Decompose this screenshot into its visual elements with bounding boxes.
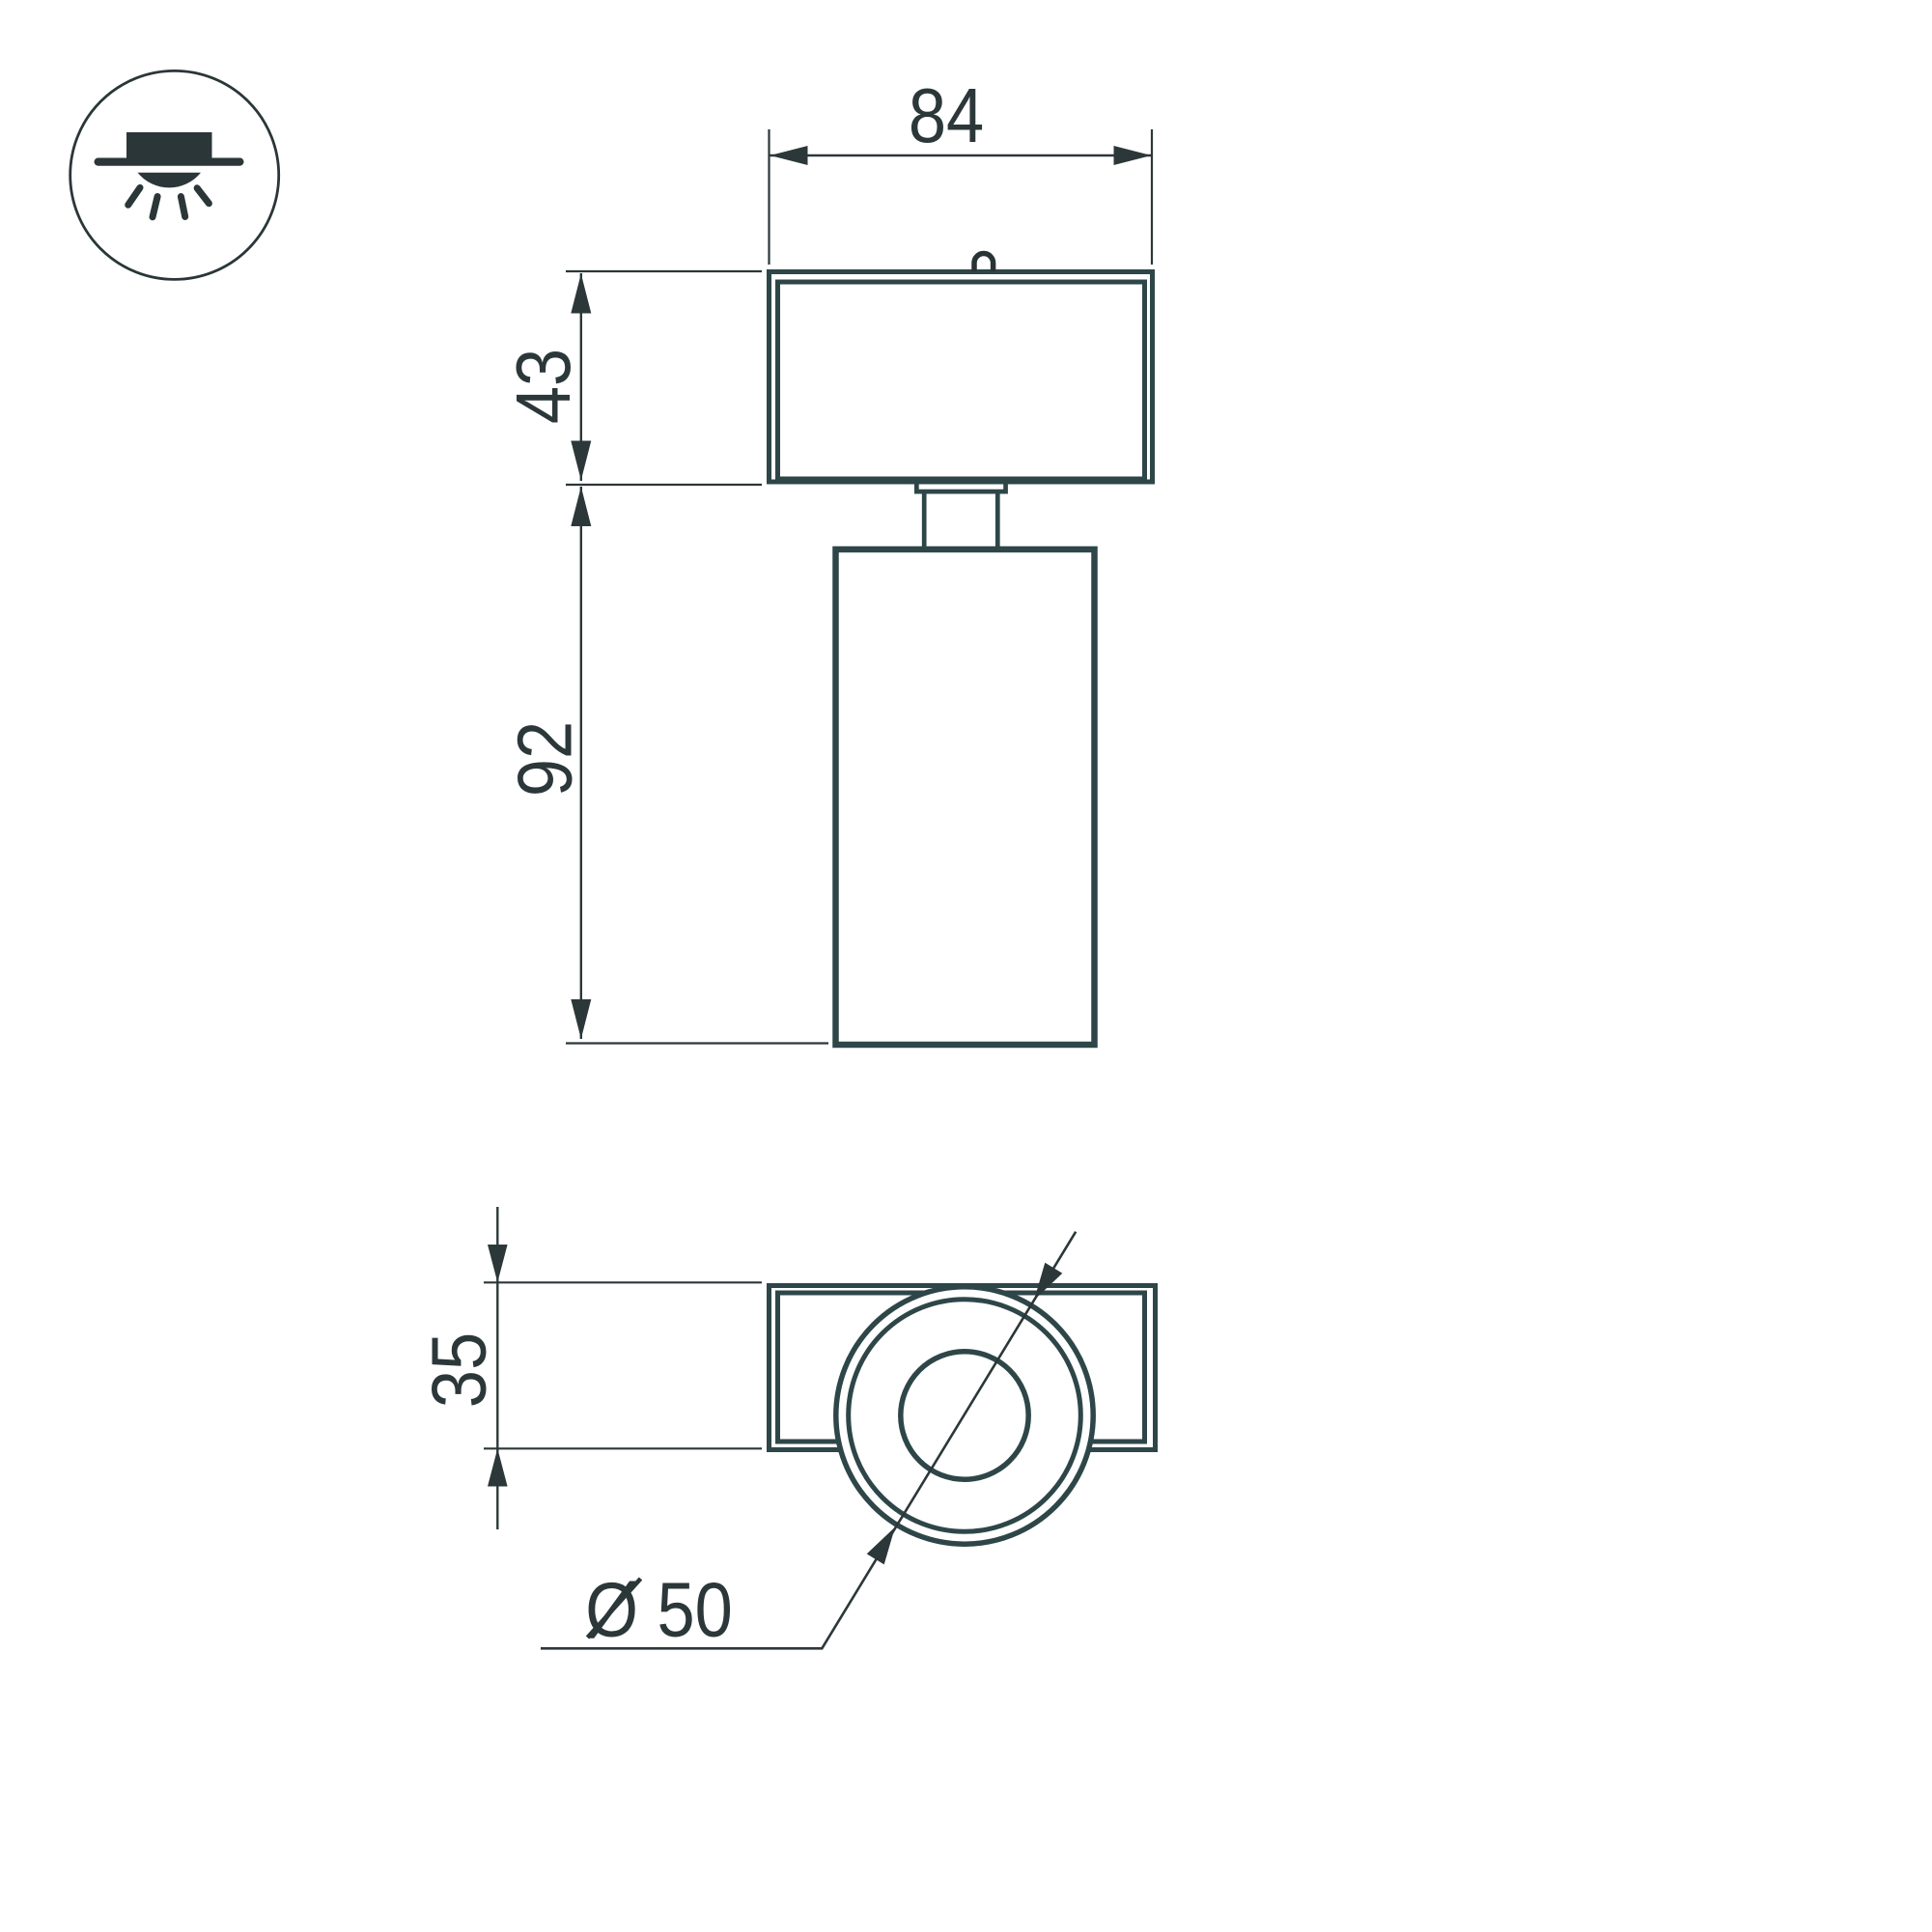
svg-text:35: 35 xyxy=(415,1332,501,1408)
svg-text:84: 84 xyxy=(909,72,984,158)
svg-text:Ø 50: Ø 50 xyxy=(585,1566,733,1652)
svg-text:92: 92 xyxy=(501,721,587,797)
svg-text:43: 43 xyxy=(500,349,586,424)
